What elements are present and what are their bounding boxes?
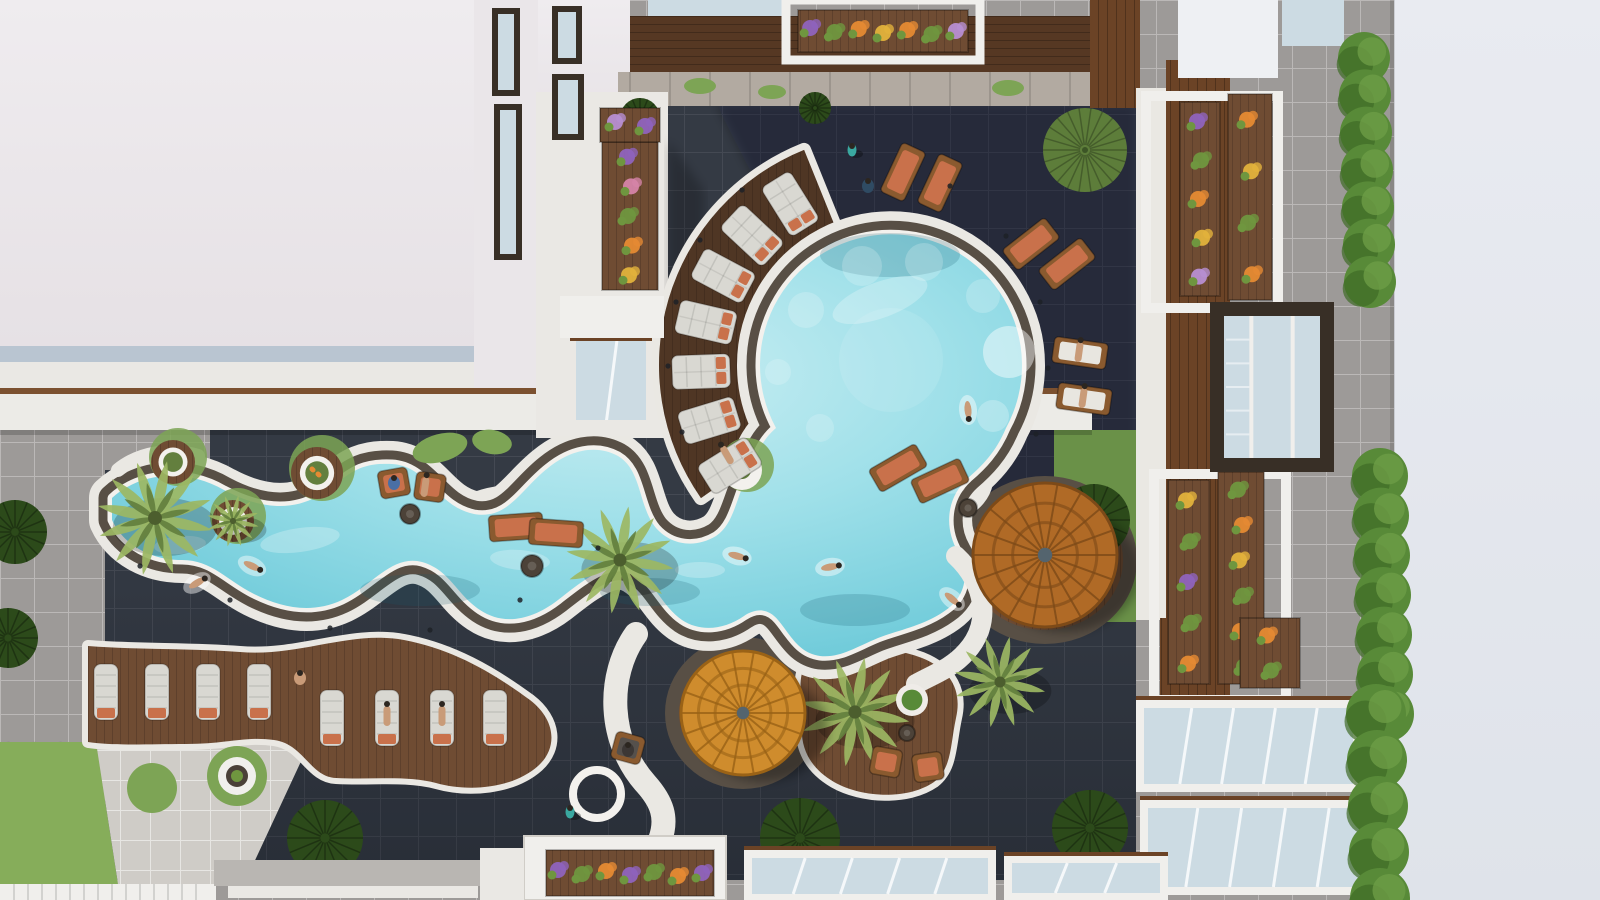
flower-cluster <box>811 19 821 29</box>
flower-cluster <box>1200 268 1210 278</box>
foliage-cluster <box>548 871 557 880</box>
lounger-cushion <box>534 523 577 544</box>
hedge-bush-light <box>1375 533 1406 564</box>
foliage-cluster <box>1261 671 1270 680</box>
flower-cluster <box>616 113 626 123</box>
grass-patch <box>992 80 1024 96</box>
wood-lounger <box>528 518 584 548</box>
flower-cluster <box>957 22 967 32</box>
submerged-lounge-disc <box>977 400 1009 432</box>
foliage-cluster <box>618 217 627 226</box>
side-table-top <box>964 504 971 511</box>
sun-lounger <box>247 664 271 720</box>
foliage-cluster <box>692 874 701 883</box>
hedge-bush-light <box>1361 149 1390 178</box>
foliage-cluster <box>1230 632 1239 641</box>
armchair <box>413 471 447 503</box>
foliage-cluster <box>800 29 809 38</box>
deck-light <box>517 597 522 602</box>
foliage-cluster <box>620 876 629 885</box>
hedge-bush-light <box>1369 690 1402 723</box>
submerged-lounge-disc <box>966 279 1000 313</box>
structure <box>1178 0 1278 78</box>
submerged-lounge-disc <box>788 292 824 328</box>
hedge-bush-light <box>1374 493 1405 524</box>
armchair-cushion <box>875 751 898 772</box>
side-table-top <box>528 562 537 571</box>
foliage-cluster <box>619 276 628 285</box>
flower-cluster <box>633 237 643 247</box>
flower-cluster <box>628 148 638 158</box>
deck-light <box>327 625 332 630</box>
deck-light <box>697 237 702 242</box>
person-head <box>391 475 397 481</box>
person-head <box>439 701 445 707</box>
deck-light <box>679 429 684 434</box>
hedge-bush-light <box>1358 37 1387 66</box>
flower-cluster <box>1199 190 1209 200</box>
flower-cluster <box>860 20 870 30</box>
thatched-umbrella <box>681 651 805 775</box>
flower-cluster <box>1189 655 1199 665</box>
structure <box>214 860 480 886</box>
deck-light <box>595 545 600 550</box>
foliage-cluster <box>1191 161 1200 170</box>
flower-cluster <box>1198 112 1208 122</box>
person-lying <box>384 701 391 726</box>
hedge-bush-light <box>1377 612 1408 643</box>
grass-patch <box>127 763 177 813</box>
flower-cluster <box>1272 662 1282 672</box>
orange-pillow <box>250 708 268 718</box>
foliage-cluster <box>605 123 614 132</box>
glass-panel <box>1012 863 1160 893</box>
person-head <box>384 701 390 707</box>
deck-light <box>947 183 952 188</box>
flower-cluster <box>1188 573 1198 583</box>
flower-cluster <box>679 867 689 877</box>
foliage-cluster <box>1176 501 1185 510</box>
foliage-cluster <box>1188 200 1197 209</box>
window-glass <box>500 110 516 254</box>
hedge-bush-light <box>1376 573 1407 604</box>
foliage-cluster <box>1228 490 1237 499</box>
palm-crown <box>994 676 1005 687</box>
structure <box>560 296 664 338</box>
deck-light <box>427 627 432 632</box>
flower-cluster <box>908 21 918 31</box>
island-flower <box>311 468 316 473</box>
orange-pillow <box>199 708 217 718</box>
sun-lounger <box>672 354 731 390</box>
main-roof <box>0 0 474 346</box>
person-head <box>865 178 871 184</box>
foliage-cluster <box>617 157 626 166</box>
orange-pillow <box>148 708 166 718</box>
submerged-lounge-disc <box>806 414 834 442</box>
roof-ledge <box>0 362 492 388</box>
thatched-umbrella <box>973 483 1117 627</box>
hedge-bush-light <box>1378 652 1409 683</box>
foliage-cluster <box>644 873 653 882</box>
submerged-lounge-disc <box>842 246 882 286</box>
orange-pillow <box>716 372 726 384</box>
hedge-bush-light <box>1362 187 1391 216</box>
armchair <box>869 746 903 779</box>
foliage-cluster <box>1237 120 1246 129</box>
flower-cluster <box>646 117 656 127</box>
hedge-bush-light <box>1370 736 1403 769</box>
flower-cluster <box>1244 587 1254 597</box>
flower-cluster <box>1268 627 1278 637</box>
armchair-cushion <box>917 757 939 778</box>
foliage-cluster <box>596 872 605 881</box>
foliage-cluster <box>622 246 631 255</box>
orange-pillow <box>433 734 451 744</box>
foliage-cluster <box>635 127 644 136</box>
water-shade <box>800 594 910 626</box>
flower-cluster <box>1240 551 1250 561</box>
deck-light <box>1033 431 1038 436</box>
sun-lounger <box>145 664 169 720</box>
palm-crown <box>230 518 236 524</box>
water-sparkle <box>675 562 725 578</box>
foliage-cluster <box>1187 122 1196 131</box>
palm-crown <box>148 511 162 525</box>
flower-cluster <box>1191 532 1201 542</box>
foliage-cluster <box>1241 172 1250 181</box>
flower-cluster <box>655 863 665 873</box>
hedge-bush-light <box>1364 261 1393 290</box>
flower-cluster <box>631 866 641 876</box>
sun-lounger <box>94 664 118 720</box>
water-shade <box>360 574 480 606</box>
deck-light <box>665 363 670 368</box>
deck-light <box>1003 233 1008 238</box>
orange-pillow <box>378 734 396 744</box>
foliage-cluster <box>1189 277 1198 286</box>
resort-aerial-rendering <box>0 0 1600 900</box>
flower-cluster <box>703 864 713 874</box>
foliage-cluster <box>668 877 677 886</box>
flower-cluster <box>559 861 569 871</box>
foliage-cluster <box>1192 238 1201 247</box>
round-planter <box>231 770 243 782</box>
foliage-cluster <box>945 32 954 41</box>
person-head <box>625 742 631 748</box>
northeast-wood-band <box>1090 0 1140 108</box>
foliage-cluster <box>1232 526 1241 535</box>
potted-plant <box>902 690 923 711</box>
person-lying <box>439 701 446 726</box>
hedge-bush-light <box>1363 224 1392 253</box>
person-head <box>297 670 303 676</box>
flower-cluster <box>632 177 642 187</box>
foliage-cluster <box>848 30 857 39</box>
palm-crown <box>614 554 627 567</box>
flower-cluster <box>1187 491 1197 501</box>
deck-light <box>1045 365 1050 370</box>
hedge-bush-light <box>1360 112 1389 141</box>
flower-cluster <box>1202 151 1212 161</box>
foliage-cluster <box>1242 275 1251 284</box>
person-body <box>384 706 391 726</box>
flower-cluster <box>1249 214 1259 224</box>
flower-cluster <box>1239 481 1249 491</box>
window-glass <box>558 80 578 134</box>
flower-cluster <box>607 862 617 872</box>
side-table-top <box>406 510 414 518</box>
structure <box>480 848 524 900</box>
sun-lounger <box>320 690 344 746</box>
foliage-cluster <box>921 35 930 44</box>
grass-patch <box>758 85 786 99</box>
fan-palm-center <box>1082 147 1088 153</box>
submerged-lounge-disc <box>983 326 1035 378</box>
foliage-cluster <box>621 187 630 196</box>
flower-cluster <box>933 25 943 35</box>
island-flower <box>317 473 322 478</box>
structure <box>1282 0 1344 46</box>
foliage-cluster <box>873 34 882 43</box>
orange-pillow <box>716 357 726 369</box>
glass-panel <box>752 858 988 894</box>
grass-patch <box>684 78 716 94</box>
flower-cluster <box>1243 516 1253 526</box>
structure <box>228 886 478 898</box>
flower-cluster <box>835 23 845 33</box>
flower-cluster <box>630 266 640 276</box>
structure <box>0 884 216 900</box>
foliage-cluster <box>1238 223 1247 232</box>
hedge-bush-light <box>1373 454 1404 485</box>
glass-panel <box>1148 808 1367 887</box>
umbrella-hub <box>737 707 749 719</box>
foliage-cluster <box>1233 596 1242 605</box>
hedge-bush-light <box>1359 75 1388 104</box>
foliage-cluster <box>1177 583 1186 592</box>
flower-cluster <box>583 865 593 875</box>
roof-parapet <box>0 346 474 362</box>
palm-crown <box>848 705 861 718</box>
window-glass <box>558 12 576 58</box>
person-head <box>567 805 573 811</box>
foliage-cluster <box>1257 636 1266 645</box>
flower-cluster <box>629 207 639 217</box>
person-body <box>439 706 446 726</box>
foliage-cluster <box>1180 542 1189 551</box>
umbrella-hub <box>1038 548 1052 562</box>
aerial-scene-canvas <box>0 0 1600 900</box>
orange-pillow <box>323 734 341 744</box>
deck-light <box>673 299 678 304</box>
deck-light <box>739 187 744 192</box>
structure <box>548 420 660 436</box>
sun-lounger <box>196 664 220 720</box>
sun-lounger <box>483 690 507 746</box>
deck-light <box>137 563 142 568</box>
east-wall <box>1394 0 1600 900</box>
flower-cluster <box>1252 162 1262 172</box>
orange-pillow <box>486 734 504 744</box>
deck-light <box>1037 299 1042 304</box>
person-head <box>849 143 855 149</box>
flower-cluster <box>1248 111 1258 121</box>
flower-cluster <box>1203 229 1213 239</box>
flower-cluster <box>1253 265 1263 275</box>
side-table-top <box>904 730 910 736</box>
hedge-bush-light <box>1372 828 1405 861</box>
foliage-cluster <box>1181 623 1190 632</box>
submerged-lounge-disc <box>765 359 791 385</box>
foliage-cluster <box>1229 561 1238 570</box>
foliage-cluster <box>897 31 906 40</box>
glass-panel <box>1144 708 1353 784</box>
flower-cluster <box>1192 614 1202 624</box>
orange-pillow <box>97 708 115 718</box>
skylight-band <box>648 0 788 16</box>
armchair <box>911 751 945 783</box>
foliage-cluster <box>572 875 581 884</box>
submerged-lounge-disc <box>905 243 943 281</box>
deck-light <box>227 597 232 602</box>
window-glass <box>498 14 514 90</box>
flower-cluster <box>884 24 894 34</box>
foliage-cluster <box>824 33 833 42</box>
hedge-bush-light <box>1371 782 1404 815</box>
foliage-cluster <box>1178 664 1187 673</box>
